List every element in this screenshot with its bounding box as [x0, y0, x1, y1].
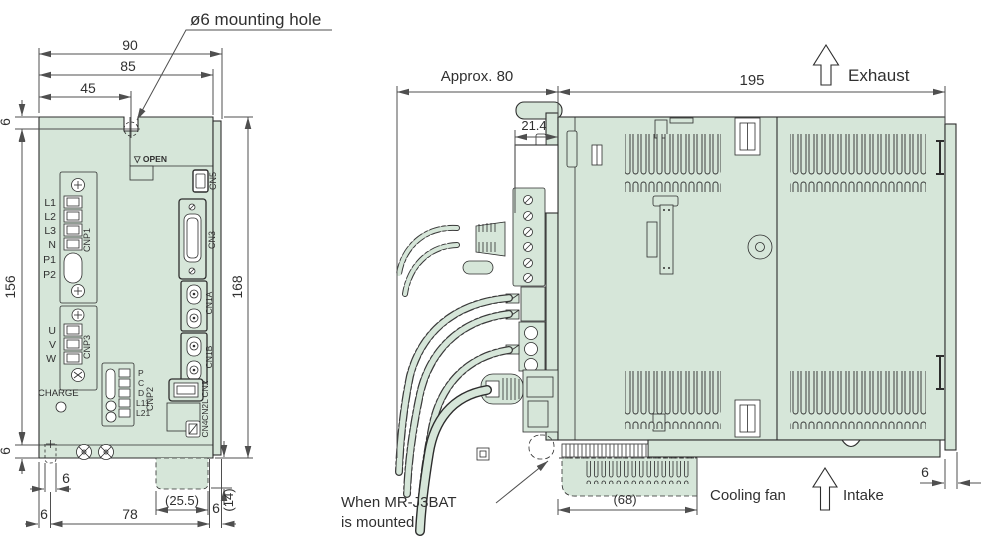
battery-front — [156, 458, 208, 489]
dim-slot-6: 6 — [62, 470, 70, 486]
charge-label: CHARGE — [38, 388, 79, 399]
cnp3-label: CNP3 — [82, 335, 92, 359]
cooling-fan-label: Cooling fan — [710, 487, 786, 504]
dim-168: 168 — [229, 275, 245, 299]
dim-21-4: 21.4 — [521, 118, 546, 133]
open-label: ▽ OPEN — [133, 154, 167, 164]
terminal-d: D — [138, 388, 144, 398]
cn2-label: CN2 — [200, 380, 210, 397]
dim-bottom-6-left: 6 — [40, 506, 48, 522]
outline-drawing: ▽ OPEN ø6 mounting hole L1 L2 L3 N P1 P2 — [0, 0, 983, 538]
terminal-p2: P2 — [43, 269, 56, 281]
dim-left-6-bottom: 6 — [0, 447, 13, 455]
exhaust-label: Exhaust — [848, 66, 910, 85]
cn1a-label: CN1A — [204, 291, 214, 314]
dim-battery-width: (25.5) — [165, 493, 199, 508]
dim-45: 45 — [80, 80, 96, 96]
dim-back-6: 6 — [921, 464, 929, 480]
vents-bottom-left — [625, 371, 721, 429]
terminal-v: V — [49, 339, 56, 351]
mounting-hole-note: ø6 mounting hole — [190, 10, 321, 29]
dim-156: 156 — [2, 275, 18, 299]
terminal-u: U — [48, 325, 56, 337]
dim-85: 85 — [120, 58, 136, 74]
cn4-label: CN4 — [200, 420, 210, 437]
terminal-p1: P1 — [43, 254, 56, 266]
cnp2-label: CNP2 — [145, 387, 155, 411]
battery-note-line1: When MR-J3BAT — [341, 494, 457, 511]
terminal-l2: L2 — [44, 211, 56, 223]
dim-bottom-6-right: 6 — [212, 500, 220, 516]
cn2l-label: CN2L — [200, 399, 210, 421]
vents-top-right — [790, 134, 926, 192]
front-side-fin — [213, 121, 221, 455]
vents-bottom-right — [790, 371, 926, 429]
cn3-label: CN3 — [207, 231, 217, 249]
cn2-area: CN2 CN2L CN4 — [167, 379, 210, 438]
charge-led — [56, 402, 66, 412]
dim-195: 195 — [739, 72, 764, 89]
intake-arrow-icon — [813, 468, 837, 510]
dim-68: (68) — [613, 492, 636, 507]
terminal-c: C — [138, 378, 144, 388]
cn5-label: CN5 — [208, 172, 218, 190]
side-view: Approx. 80 195 21.4 Exhaust (68) 6 Coo — [341, 45, 981, 531]
battery-note-leader — [496, 461, 548, 503]
open-tab — [130, 166, 153, 180]
cnp1-label: CNP1 — [82, 228, 92, 252]
front-view: ▽ OPEN ø6 mounting hole L1 L2 L3 N P1 P2 — [0, 10, 332, 528]
dim-battery-depth: (14) — [221, 488, 236, 511]
battery-side — [559, 458, 697, 496]
bottom-base — [648, 440, 940, 457]
drawing-svg: ▽ OPEN ø6 mounting hole L1 L2 L3 N P1 P2 — [0, 0, 983, 538]
terminal-l1: L1 — [44, 197, 56, 209]
cn5-connector: CN5 — [193, 170, 218, 192]
dim-approx-80: Approx. 80 — [441, 68, 514, 85]
terminal-p: P — [138, 368, 144, 378]
terminal-w: W — [46, 353, 56, 365]
cn1b-label: CN1B — [204, 345, 214, 368]
vents-top-left — [625, 134, 721, 192]
exhaust-arrow-icon — [814, 45, 839, 85]
intake-label: Intake — [843, 487, 884, 504]
dim-78: 78 — [122, 506, 138, 522]
terminal-l3: L3 — [44, 225, 56, 237]
back-plate — [945, 124, 956, 450]
dim-left-6-top: 6 — [0, 118, 13, 126]
battery-note-line2: is mounted — [341, 514, 414, 531]
terminal-n: N — [48, 239, 56, 251]
dim-90: 90 — [122, 37, 138, 53]
